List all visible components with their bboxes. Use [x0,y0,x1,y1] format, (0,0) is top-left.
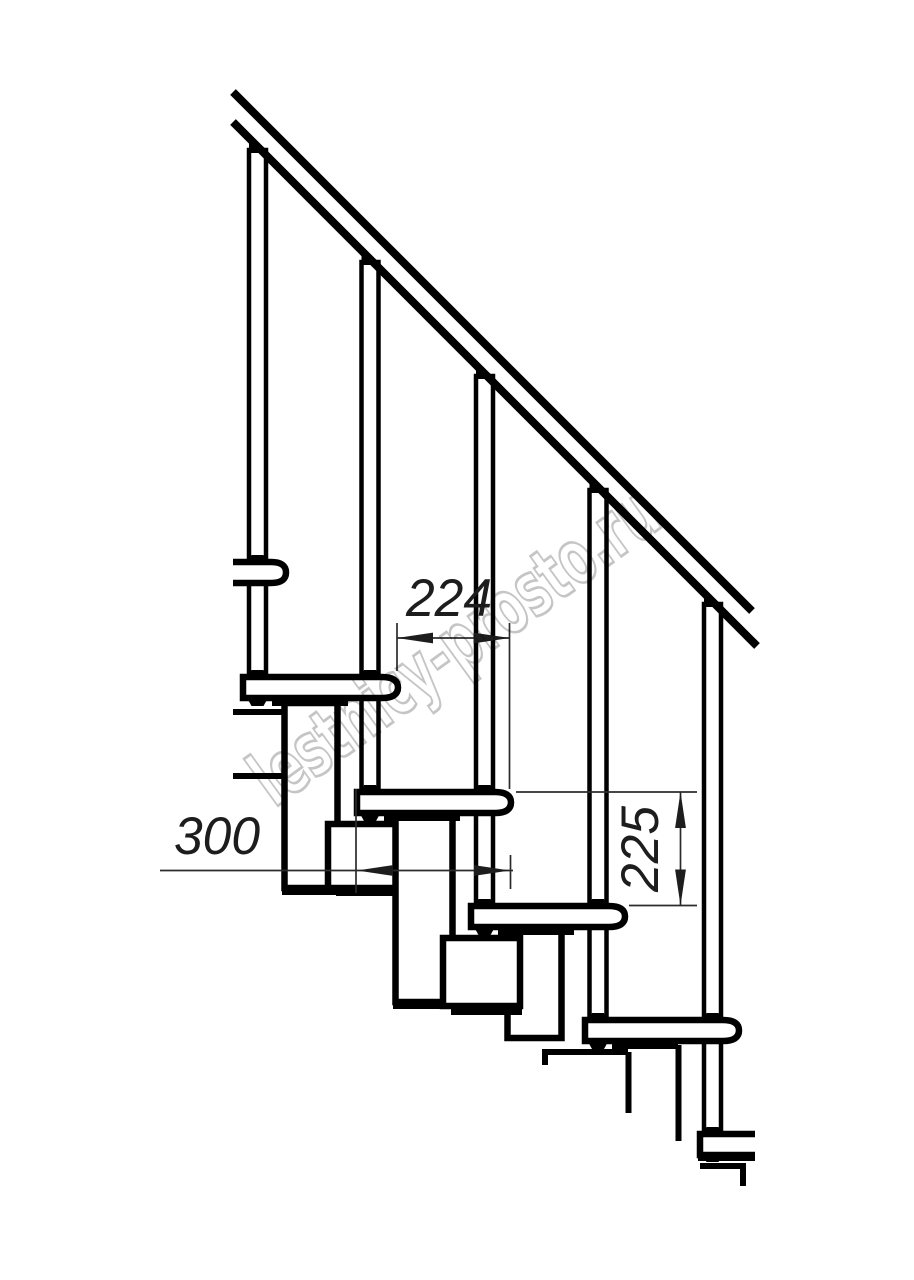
tread-shadow [384,814,460,821]
tread-shadow [612,1042,678,1049]
tread-3 [357,792,511,813]
module-box-b-shadow [451,1006,522,1015]
tread-shadow [498,928,574,935]
nut [474,926,496,935]
dimension-tread-depth-value: 300 [174,807,261,866]
module-box-d [700,1166,743,1186]
tread-1 [233,562,286,583]
nut [587,1040,609,1049]
nut [359,812,381,821]
staircase-drawing: 224 300 225 lestnicy-prosto.ru [0,0,914,1280]
tread-6 [700,1134,755,1155]
tread-shadow [698,1152,755,1161]
dimension-rise-value: 225 [611,805,670,892]
tread-5 [585,1020,739,1041]
module-box-c [545,1052,629,1113]
drawing-page: 224 300 225 lestnicy-prosto.ru [0,0,914,1280]
baluster-1 [249,150,266,679]
module-box-b [443,938,520,1006]
arrowhead-down [675,870,686,906]
arrowhead-up [675,792,686,828]
nut [247,697,269,706]
tread-4 [471,906,625,927]
baluster-5 [704,604,721,1136]
